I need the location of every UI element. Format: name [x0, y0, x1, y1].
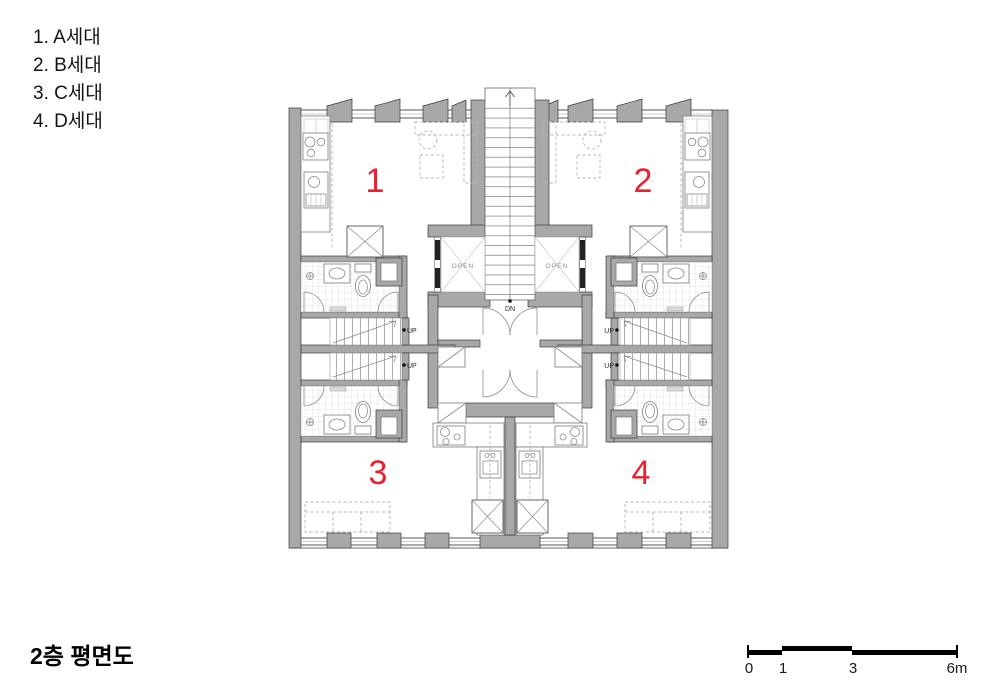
shaft-crossed-box [472, 500, 503, 533]
closet [616, 417, 632, 435]
up-label: UP [604, 363, 614, 370]
sink-icon [663, 264, 689, 283]
unit-2-bathroom [611, 258, 712, 312]
unit-4-sofa [625, 502, 710, 532]
sink-icon [663, 415, 689, 434]
legend-item-c: 3. C세대 [33, 80, 103, 108]
lightwell-window [435, 240, 440, 260]
kitchen-sink-icon [685, 172, 709, 208]
sink-icon [324, 415, 350, 434]
unit-3-sofa [305, 502, 390, 532]
toilet-icon [642, 402, 658, 435]
legend-item-b: 2. B세대 [33, 52, 103, 80]
kitchen-sink-icon [304, 172, 328, 208]
chair-icon [583, 131, 601, 149]
kitchen-sink-icon [519, 451, 540, 478]
lightwell-window [580, 240, 585, 260]
legend-item-d: 4. D세대 [33, 108, 103, 136]
unit-4-number: 4 [632, 454, 651, 492]
floor-drain-icon [700, 273, 707, 280]
lightwell-window [435, 268, 440, 288]
scale-segment [747, 650, 782, 655]
scale-label-1: 1 [779, 660, 787, 677]
toilet-icon [642, 264, 658, 297]
stove-icon [555, 426, 583, 445]
dn-label: DN [505, 306, 515, 313]
unit-3-number: 3 [369, 454, 388, 492]
kitchen-sink-icon [480, 451, 501, 478]
lightwell-window [580, 268, 585, 288]
floor-plan-drawing: DN OPEN OPEN [283, 83, 735, 555]
stove-icon [685, 133, 710, 160]
up-label: UP [407, 363, 417, 370]
open-label-left: OPEN [452, 263, 474, 270]
closet [616, 263, 632, 281]
floor-drain-icon [700, 419, 707, 426]
unit-1-sofa [415, 122, 477, 183]
floor-drain-icon [307, 419, 314, 426]
stove-icon [437, 426, 465, 445]
open-void-right: OPEN [535, 237, 586, 292]
unit-2-sofa [543, 122, 605, 183]
scale-label-6m: 6m [947, 660, 968, 677]
unit-2-number: 2 [634, 162, 653, 200]
scale-label-3: 3 [849, 660, 857, 677]
shaft-crossed-box [347, 226, 383, 257]
shaft-crossed-box [517, 500, 548, 533]
drawing-title: 2층 평면도 [30, 637, 134, 671]
double-door-lower [483, 370, 537, 397]
toilet-icon [355, 264, 371, 297]
stair-core: DN [485, 88, 535, 313]
chair-icon [419, 131, 437, 149]
dn-marker-dot [508, 299, 512, 303]
open-label-right: OPEN [546, 263, 568, 270]
closet [381, 263, 397, 281]
unit-1-bathroom [301, 258, 402, 312]
up-label: UP [407, 328, 417, 335]
scale-segment [782, 646, 852, 651]
scale-label-0: 0 [745, 660, 753, 677]
unit-4-kitchen [516, 423, 587, 535]
unit-legend: 1. A세대 2. B세대 3. C세대 4. D세대 [33, 24, 103, 136]
shaft-crossed-box [630, 226, 667, 257]
unit-1-number: 1 [366, 162, 385, 200]
unit-3-kitchen [433, 423, 504, 535]
closet [381, 417, 397, 435]
legend-item-a: 1. A세대 [33, 24, 103, 52]
floor-drain-icon [307, 273, 314, 280]
unit-3-bathroom [301, 386, 402, 438]
stove-icon [303, 133, 328, 160]
open-void-left: OPEN [435, 237, 486, 292]
scale-segment [852, 650, 958, 655]
scale-bar: 0 1 3 6m [747, 644, 959, 680]
sink-icon [324, 264, 350, 283]
toilet-icon [355, 402, 371, 435]
unit-4-bathroom [611, 386, 712, 438]
up-label: UP [604, 328, 614, 335]
